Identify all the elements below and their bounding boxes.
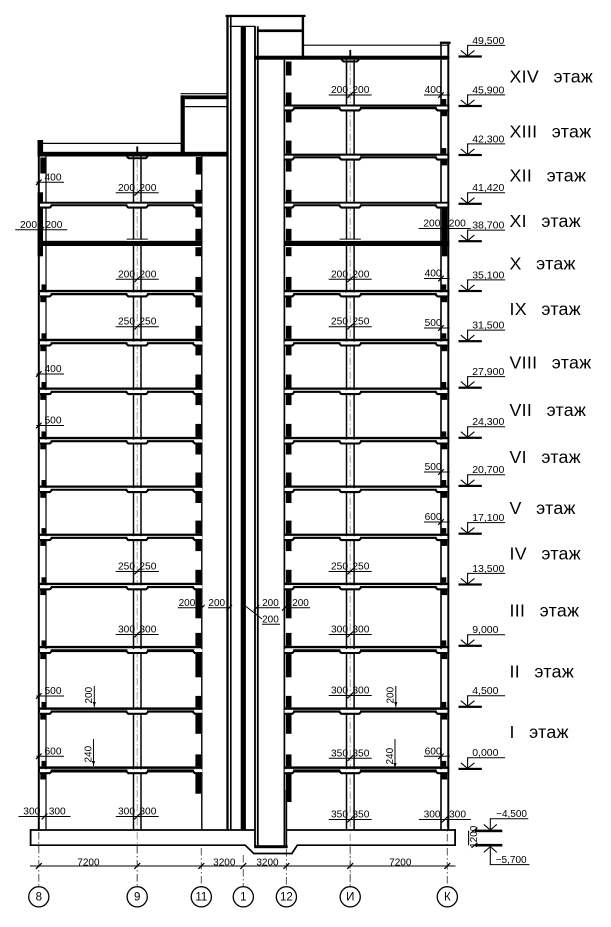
- svg-text:250: 250: [139, 562, 156, 573]
- svg-text:4,500: 4,500: [472, 685, 498, 697]
- svg-text:300: 300: [118, 807, 135, 818]
- svg-text:К: К: [444, 892, 451, 904]
- svg-text:200: 200: [20, 220, 37, 231]
- svg-text:300: 300: [139, 807, 156, 818]
- svg-text:31,500: 31,500: [472, 320, 504, 332]
- svg-text:13,500: 13,500: [472, 563, 504, 575]
- svg-text:300: 300: [331, 686, 348, 697]
- svg-text:200: 200: [423, 219, 440, 230]
- svg-text:1200: 1200: [469, 825, 480, 848]
- svg-text:350: 350: [352, 748, 369, 759]
- svg-text:250: 250: [352, 317, 369, 328]
- svg-text:20,700: 20,700: [472, 464, 504, 476]
- svg-text:24,300: 24,300: [472, 416, 504, 428]
- svg-text:300: 300: [23, 807, 40, 818]
- svg-text:200: 200: [118, 183, 135, 194]
- svg-text:400: 400: [425, 269, 442, 280]
- svg-text:350: 350: [352, 810, 369, 821]
- svg-text:VII этаж: VII этаж: [510, 400, 587, 420]
- svg-text:3200: 3200: [213, 857, 236, 868]
- svg-text:500: 500: [425, 318, 442, 329]
- svg-text:400: 400: [45, 364, 62, 375]
- svg-text:600: 600: [425, 512, 442, 523]
- svg-text:250: 250: [352, 562, 369, 573]
- svg-text:250: 250: [331, 317, 348, 328]
- svg-text:VIII этаж: VIII этаж: [510, 353, 592, 373]
- svg-text:III этаж: III этаж: [510, 601, 580, 621]
- svg-text:XIII этаж: XIII этаж: [510, 122, 592, 142]
- svg-text:200: 200: [139, 183, 156, 194]
- svg-text:200: 200: [139, 269, 156, 280]
- svg-text:250: 250: [118, 317, 135, 328]
- svg-text:350: 350: [331, 810, 348, 821]
- svg-text:45,900: 45,900: [472, 84, 504, 96]
- svg-text:350: 350: [331, 748, 348, 759]
- svg-text:200: 200: [449, 219, 466, 230]
- svg-text:300: 300: [331, 625, 348, 636]
- svg-text:VI этаж: VI этаж: [510, 447, 581, 467]
- svg-text:500: 500: [45, 416, 62, 427]
- svg-text:400: 400: [425, 85, 442, 96]
- svg-text:0,000: 0,000: [472, 747, 498, 759]
- svg-text:200: 200: [45, 220, 62, 231]
- svg-text:200: 200: [331, 85, 348, 96]
- svg-text:И: И: [346, 892, 354, 904]
- svg-text:300: 300: [424, 810, 441, 821]
- svg-text:250: 250: [139, 317, 156, 328]
- svg-text:240: 240: [385, 747, 396, 764]
- svg-text:500: 500: [45, 686, 62, 697]
- svg-text:9,000: 9,000: [472, 624, 498, 636]
- svg-text:300: 300: [352, 625, 369, 636]
- svg-text:IX этаж: IX этаж: [510, 299, 581, 319]
- svg-text:250: 250: [331, 562, 348, 573]
- svg-text:7200: 7200: [77, 857, 100, 868]
- svg-text:38,700: 38,700: [472, 220, 504, 232]
- svg-text:240: 240: [83, 745, 94, 762]
- svg-text:400: 400: [45, 172, 62, 183]
- svg-text:8: 8: [36, 892, 42, 904]
- svg-text:200: 200: [352, 269, 369, 280]
- svg-text:I этаж: I этаж: [510, 722, 569, 742]
- svg-text:200: 200: [386, 686, 397, 703]
- svg-text:3200: 3200: [256, 857, 279, 868]
- svg-text:200: 200: [331, 269, 348, 280]
- svg-text:300: 300: [49, 807, 66, 818]
- svg-text:XII этаж: XII этаж: [510, 166, 587, 186]
- svg-text:35,100: 35,100: [472, 269, 504, 281]
- svg-text:17,100: 17,100: [472, 512, 504, 524]
- svg-text:49,500: 49,500: [472, 35, 504, 47]
- svg-text:27,900: 27,900: [472, 366, 504, 378]
- svg-text:300: 300: [139, 625, 156, 636]
- svg-text:300: 300: [449, 810, 466, 821]
- svg-text:X этаж: X этаж: [510, 253, 576, 273]
- svg-text:500: 500: [425, 462, 442, 473]
- svg-text:1: 1: [240, 892, 246, 904]
- svg-text:600: 600: [45, 746, 62, 757]
- svg-text:9: 9: [134, 892, 140, 904]
- svg-text:11: 11: [195, 892, 207, 904]
- svg-text:IV этаж: IV этаж: [510, 544, 581, 564]
- svg-text:XIV этаж: XIV этаж: [510, 66, 594, 86]
- svg-text:600: 600: [425, 746, 442, 757]
- svg-text:300: 300: [352, 686, 369, 697]
- svg-text:200: 200: [118, 269, 135, 280]
- svg-text:250: 250: [118, 562, 135, 573]
- svg-text:XI этаж: XI этаж: [510, 211, 581, 231]
- svg-text:200: 200: [352, 85, 369, 96]
- svg-text:42,300: 42,300: [472, 133, 504, 145]
- svg-text:−5,700: −5,700: [496, 855, 527, 866]
- svg-text:41,420: 41,420: [472, 182, 504, 194]
- svg-text:12: 12: [280, 892, 293, 904]
- svg-text:200: 200: [84, 686, 95, 703]
- svg-text:V этаж: V этаж: [510, 498, 576, 518]
- svg-text:II этаж: II этаж: [510, 661, 575, 681]
- svg-text:7200: 7200: [389, 857, 412, 868]
- svg-text:300: 300: [118, 625, 135, 636]
